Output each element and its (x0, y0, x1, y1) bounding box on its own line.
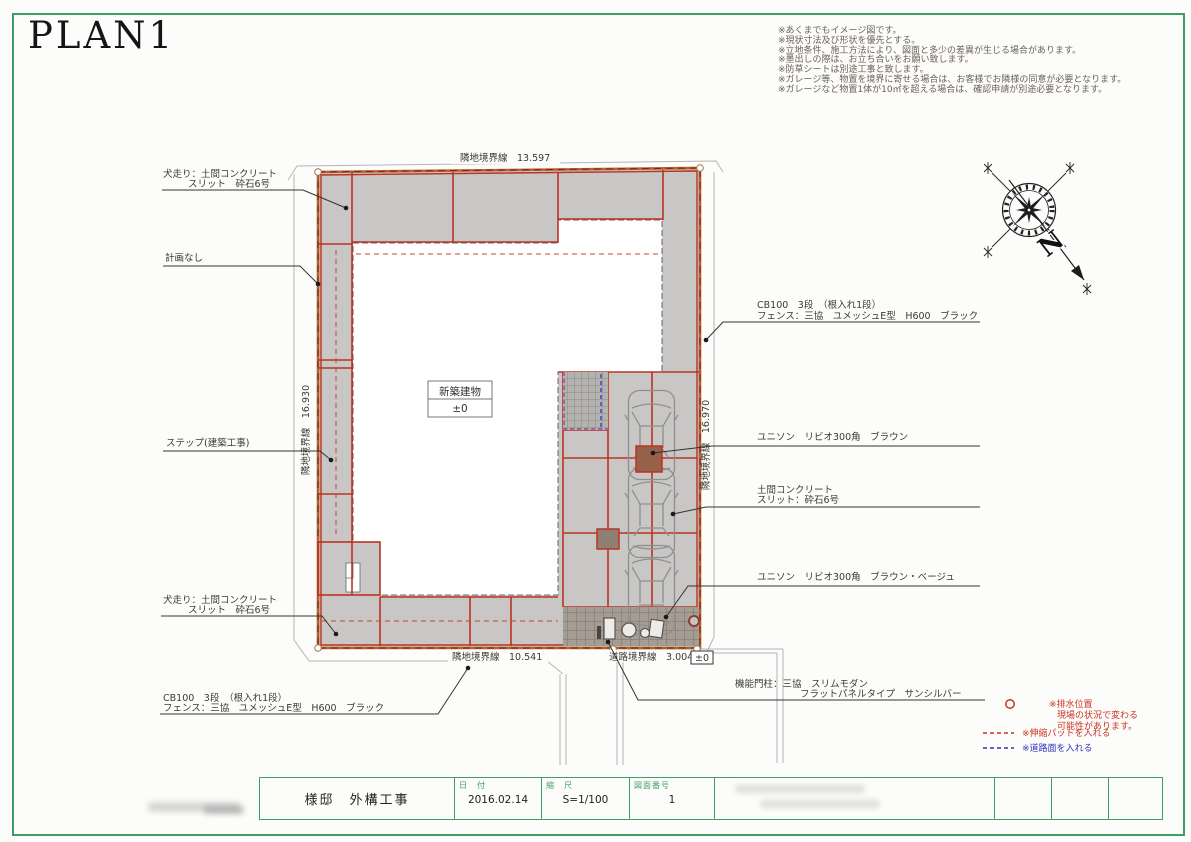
building-level: ±0 (452, 403, 467, 415)
north-arrowhead (1071, 265, 1084, 280)
gate-post (604, 618, 615, 639)
scale-value: S=1/100 (542, 794, 629, 806)
legend-expansion-label: ※伸縮パットを入れる (1022, 727, 1111, 739)
date-label: 日 付 (459, 780, 486, 791)
callout-unison-brown-beige: ユニソン リビオ300角 ブラウン・ベージュ (757, 571, 955, 583)
redacted-mark (204, 806, 244, 814)
step-notch (346, 563, 360, 592)
titleblock-empty-cell (994, 778, 1051, 819)
callout-step: ステップ(建築工事) (166, 437, 249, 449)
titleblock-empty-cell (1108, 778, 1164, 819)
legend-drain-label-2: 現場の状況で変わる (1057, 709, 1138, 721)
boundary-top-label: 隣地境界線 13.597 (460, 152, 550, 164)
boundary-right-label: 隣地境界線 16.970 (700, 400, 712, 490)
callout-slab-concrete-2: スリット：砕石6号 (757, 494, 839, 506)
boundary-road-label: 道路境界線 3.004 (609, 651, 693, 663)
function-pillar (597, 626, 601, 639)
titleblock-date-cell: 日 付 2016.02.14 (454, 778, 541, 819)
titleblock-empty-cell (1051, 778, 1108, 819)
building-label-box: 新築建物 ±0 (428, 381, 492, 417)
legend-drain-label: ※排水位置 (1049, 698, 1093, 710)
redacted-company-name (735, 785, 865, 793)
callout-dog-run-top-2: スリット 砕石6号 (188, 178, 270, 190)
legend-road-label: ※道路面を入れる (1022, 742, 1093, 754)
sheet-number-value: 1 (630, 794, 714, 806)
project-name: 様邸 外構工事 (304, 789, 409, 808)
drain-circle (689, 616, 699, 626)
titleblock-scale-cell: 縮 尺 S=1/100 (541, 778, 629, 819)
level-mark: ±0 (695, 653, 709, 664)
titleblock-project-cell: 様邸 外構工事 (260, 778, 454, 819)
callout-cb-fence-bottom-2: フェンス：三協 ユメッシュE型 H600 ブラック (163, 702, 384, 714)
site-plan-drawing: 新築建物 ±0 隣地境界線 13.597 隣地境界線 16.930 隣地境界線 … (0, 0, 1191, 842)
callout-cb-fence-right: CB100 3段 （根入れ1段） (757, 299, 881, 311)
compass-rose: N (984, 162, 1091, 295)
callout-cb-fence-right-2: フェンス：三協 ユメッシュE型 H600 ブラック (757, 310, 978, 322)
legend-drain-symbol (1006, 700, 1014, 708)
unison-paver-brown (636, 446, 662, 472)
drawing-sheet: PLAN1 ※あくまでもイメージ図です。 ※現状寸法及び形状を優先とする。 ※立… (0, 0, 1191, 842)
unison-paver-dark (597, 529, 619, 549)
callout-no-plan: 計画なし (165, 252, 203, 264)
titleblock-sheet-cell: 図面番号 1 (629, 778, 714, 819)
building-name: 新築建物 (439, 385, 481, 398)
redacted-company-name (760, 800, 880, 808)
callout-gate-pillar-2: フラットパネルタイプ サンシルバー (800, 689, 962, 700)
scale-label: 縮 尺 (546, 780, 573, 791)
boundary-bottom-label: 隣地境界線 10.541 (452, 651, 542, 663)
sheet-number-label: 図面番号 (634, 780, 670, 791)
callout-unison-brown: ユニソン リビオ300角 ブラウン (757, 431, 908, 443)
north-label: N (1033, 225, 1070, 263)
legend: ※排水位置 現場の状況で変わる 可能性があります。 ※伸縮パットを入れる ※道路… (983, 698, 1138, 754)
callout-dog-run-bottom-2: スリット 砕石6号 (188, 604, 270, 616)
date-value: 2016.02.14 (455, 794, 541, 806)
compass-cardinal-marks (984, 162, 1091, 295)
tile-grid-area (563, 372, 608, 430)
boundary-left-label: 隣地境界線 16.930 (300, 385, 312, 475)
title-block: 様邸 外構工事 日 付 2016.02.14 縮 尺 S=1/100 図面番号 … (259, 777, 1163, 820)
